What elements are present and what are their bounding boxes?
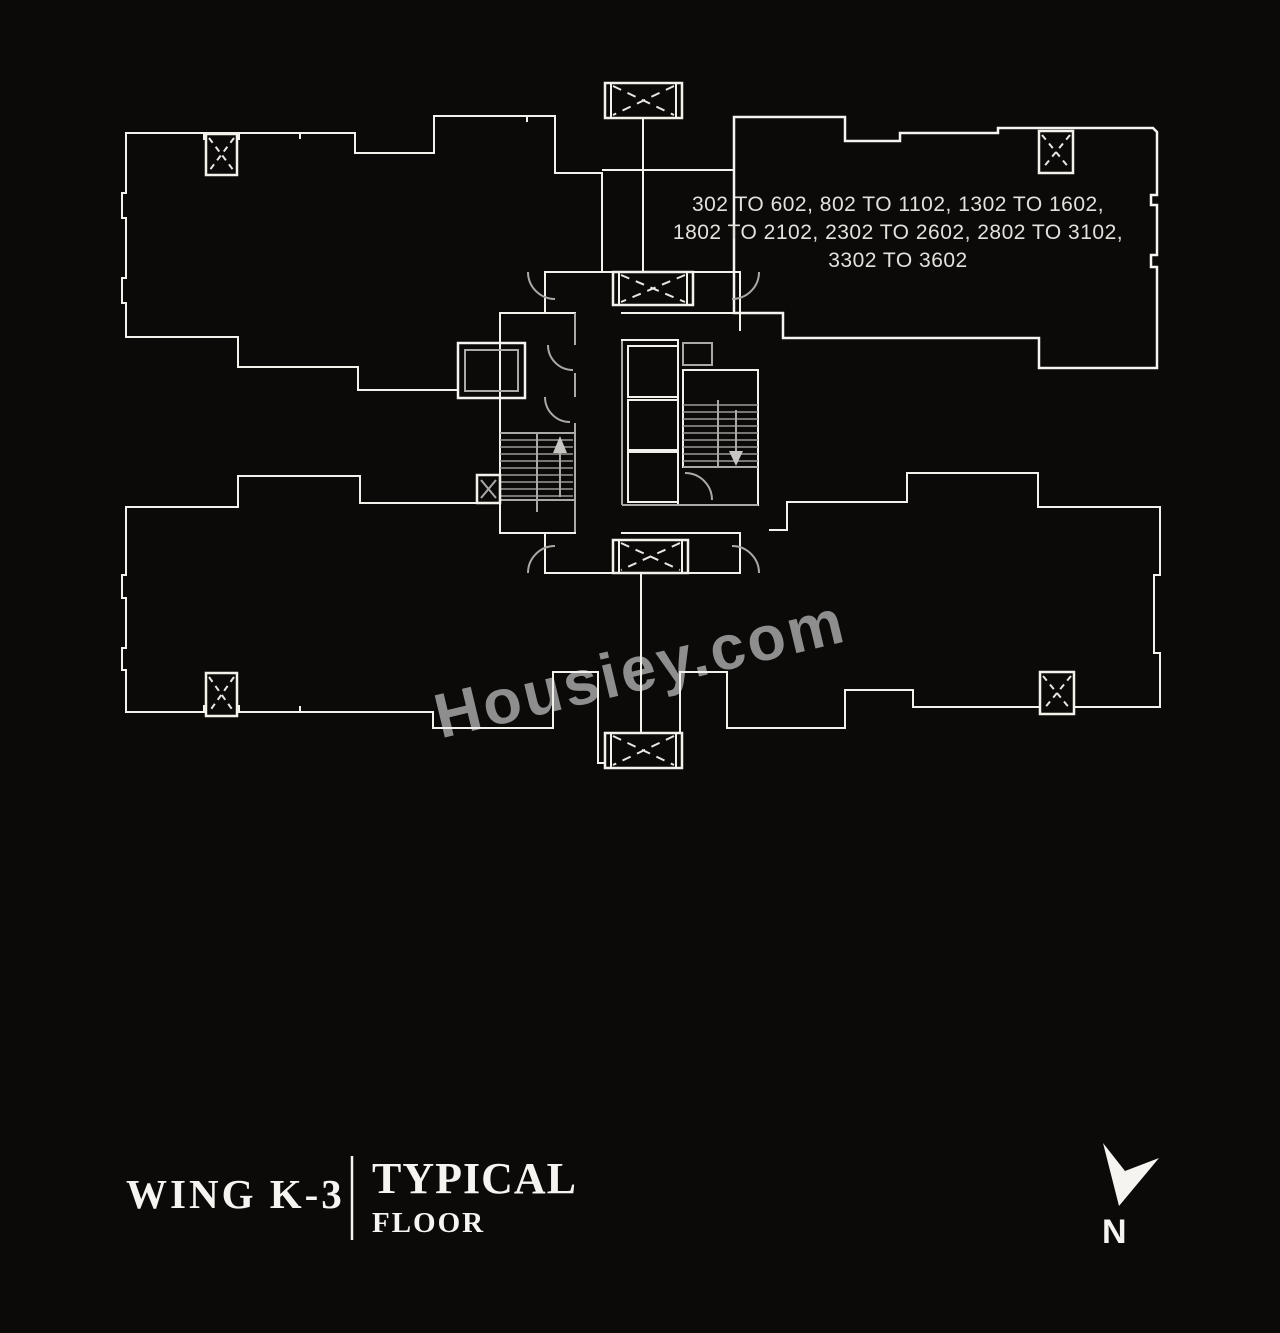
unit-numbers-line2: 1802 TO 2102, 2302 TO 2602, 2802 TO 3102… <box>673 221 1123 244</box>
unit-numbers-line1: 302 TO 602, 802 TO 1102, 1302 TO 1602, <box>692 193 1104 216</box>
duct-x-icon <box>1040 672 1074 714</box>
duct-x-icon <box>605 733 682 768</box>
duct-x-icon <box>1039 131 1073 173</box>
duct-x-icon <box>206 673 237 716</box>
floor-type-subtitle: FLOOR <box>372 1207 485 1239</box>
floor-type-title: TYPICAL <box>372 1154 577 1203</box>
duct-x-icon <box>613 272 693 305</box>
duct-x-icon <box>605 83 682 118</box>
duct-x-icon <box>613 540 688 573</box>
wing-title: WING K-3 <box>126 1171 345 1217</box>
shaft-x-icon <box>477 475 500 503</box>
duct-x-icon <box>206 134 237 175</box>
floor-plan-page: Housiey.com 302 TO 602, 802 TO 1102, 130… <box>0 0 1280 1333</box>
unit-numbers-line3: 3302 TO 3602 <box>828 249 968 272</box>
floor-plan-canvas: Housiey.com 302 TO 602, 802 TO 1102, 130… <box>0 0 1280 1333</box>
north-label: N <box>1102 1213 1127 1251</box>
